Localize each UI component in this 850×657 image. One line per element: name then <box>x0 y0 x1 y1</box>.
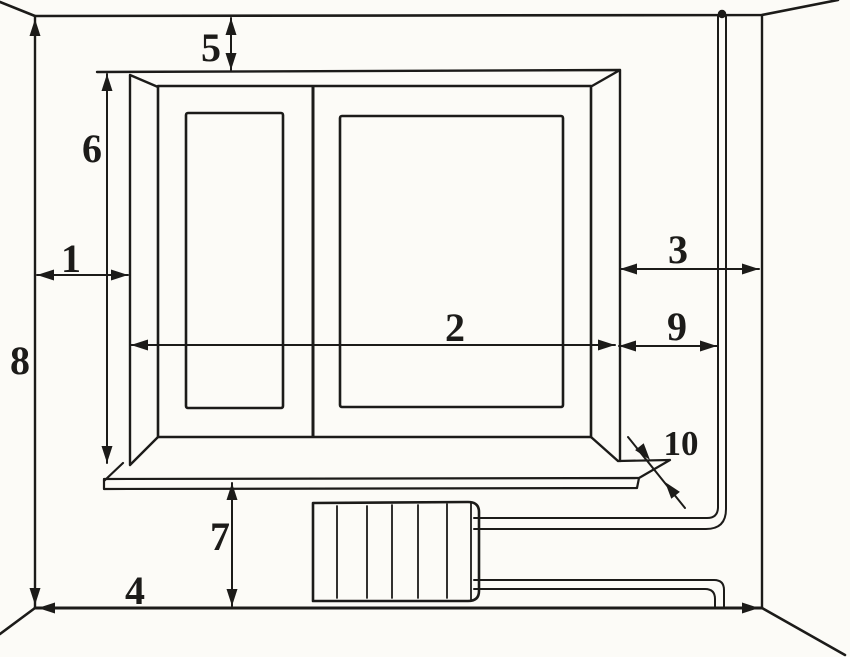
radiator <box>313 502 479 601</box>
arrowhead-right-icon <box>111 270 128 281</box>
arrowhead-right-icon <box>742 264 759 275</box>
arrowhead-left-icon <box>38 603 55 614</box>
radiator-return-pipe <box>474 580 724 607</box>
dimension-10: 10 <box>628 424 699 508</box>
dimension-5: 5 <box>201 18 237 70</box>
windowsill-outline <box>104 460 670 489</box>
dimension-3: 3 <box>620 227 759 275</box>
dimension-10-label: 10 <box>664 424 699 463</box>
dimension-4-label: 4 <box>125 568 145 613</box>
arrowhead-down-icon <box>102 446 113 463</box>
arrowhead-left-icon <box>620 264 637 275</box>
arrowhead-down-icon <box>227 589 238 606</box>
arrowhead-left-icon <box>131 340 148 351</box>
arrowhead-down-right-icon <box>635 443 650 460</box>
dimension-7-label: 7 <box>210 514 230 559</box>
dimension-6-label: 6 <box>82 126 102 171</box>
arrowhead-up-icon <box>102 74 113 91</box>
dimension-2-label: 2 <box>445 305 465 350</box>
window-measurement-diagram: 1 2 3 4 5 <box>0 0 850 657</box>
frame-outline <box>158 86 591 437</box>
arrowhead-up-icon <box>30 19 41 36</box>
dimension-5-label: 5 <box>201 25 221 70</box>
dimension-9: 9 <box>619 304 717 352</box>
dimension-7: 7 <box>210 483 238 606</box>
radiator-sections <box>337 503 471 600</box>
left-casement-glass <box>186 113 283 408</box>
return-pipe <box>474 580 724 607</box>
dimension-9-label: 9 <box>667 304 687 349</box>
dimension-1: 1 <box>37 236 128 281</box>
arrowhead-down-icon <box>30 588 41 605</box>
dimension-2: 2 <box>131 305 615 351</box>
arrowhead-right-icon <box>598 340 615 351</box>
dimension-8-label: 8 <box>10 338 30 383</box>
arrowhead-left-icon <box>37 270 54 281</box>
dimension-6: 6 <box>82 74 113 463</box>
pipe-anchor-dot <box>718 10 726 18</box>
dimension-1-label: 1 <box>61 236 81 281</box>
arrowhead-left-icon <box>619 341 636 352</box>
arrowhead-up-icon <box>226 18 237 35</box>
window-frame <box>158 86 591 437</box>
diagram-canvas: 1 2 3 4 5 <box>0 0 850 657</box>
right-casement-glass <box>340 116 563 407</box>
dimension-3-label: 3 <box>668 227 688 272</box>
arrowhead-up-icon <box>227 483 238 500</box>
arrowhead-right-icon <box>700 341 717 352</box>
arrowhead-right-icon <box>742 603 759 614</box>
windowsill <box>104 460 670 489</box>
arrowhead-up-left-icon <box>665 482 680 499</box>
arrowhead-down-icon <box>226 53 237 70</box>
